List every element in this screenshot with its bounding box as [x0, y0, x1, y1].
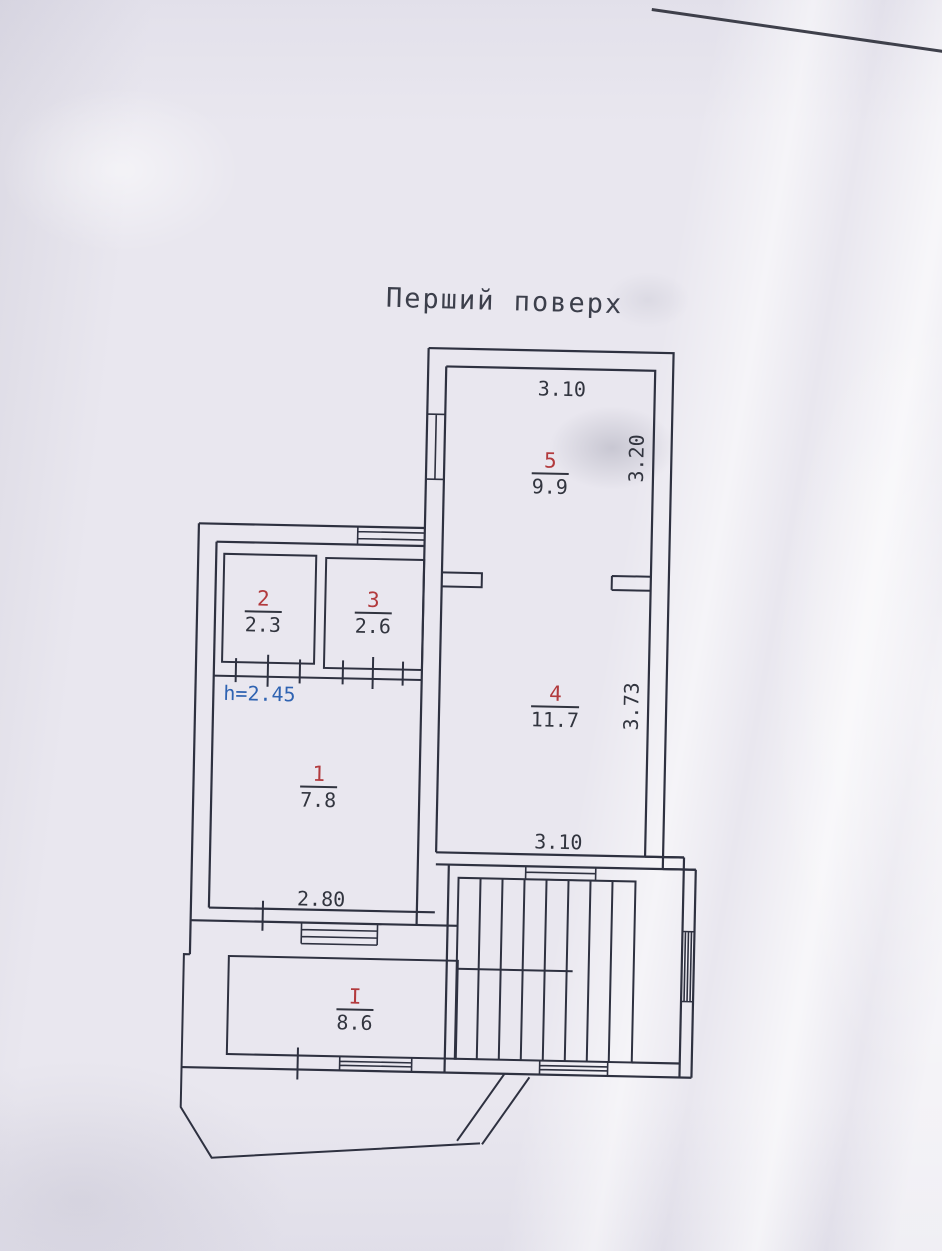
room-label-2: 2 2.3 [244, 587, 282, 636]
room-area: 9.9 [531, 475, 568, 498]
photo-page-edge-line [652, 8, 942, 54]
room-number: 4 [531, 682, 580, 708]
room-area: 2.3 [244, 613, 281, 636]
room-number: 1 [300, 762, 337, 788]
dim-room1-width-bottom: 2.80 [297, 886, 346, 911]
room-number: I [336, 985, 373, 1011]
entry-steps [457, 1073, 529, 1145]
room-label-I: I 8.6 [336, 985, 374, 1034]
room-number: 5 [532, 449, 569, 475]
room-area: 8.6 [336, 1011, 373, 1034]
windows [299, 412, 706, 1078]
room-area: 7.8 [300, 788, 337, 811]
room-label-3: 3 2.6 [354, 589, 392, 638]
room-area: 2.6 [354, 615, 391, 638]
room-label-5: 5 9.9 [531, 449, 569, 498]
dim-room5-width-top: 3.10 [537, 376, 586, 401]
dim-room5-depth-right: 3.20 [624, 434, 649, 483]
room-number: 3 [355, 589, 392, 615]
plan-title: Перший поверх [386, 283, 624, 321]
door-ticks [227, 654, 403, 1081]
scanned-floor-plan-page: { "title": "Перший поверх", "rooms": { "… [0, 0, 942, 1251]
staircase [455, 878, 636, 1063]
dim-room4-depth-right: 3.73 [619, 682, 644, 731]
room-number: 2 [245, 587, 282, 613]
room-label-1: 1 7.8 [300, 762, 338, 811]
floor-plan: 5 9.9 4 11.7 2 2.3 3 2.6 1 7.8 I 8.6 3.1… [169, 329, 732, 1192]
room-label-4: 4 11.7 [531, 682, 580, 731]
dim-room4-width-bottom: 3.10 [534, 829, 583, 854]
room-area: 11.7 [531, 708, 580, 731]
ceiling-height-note: h=2.45 [223, 681, 296, 707]
